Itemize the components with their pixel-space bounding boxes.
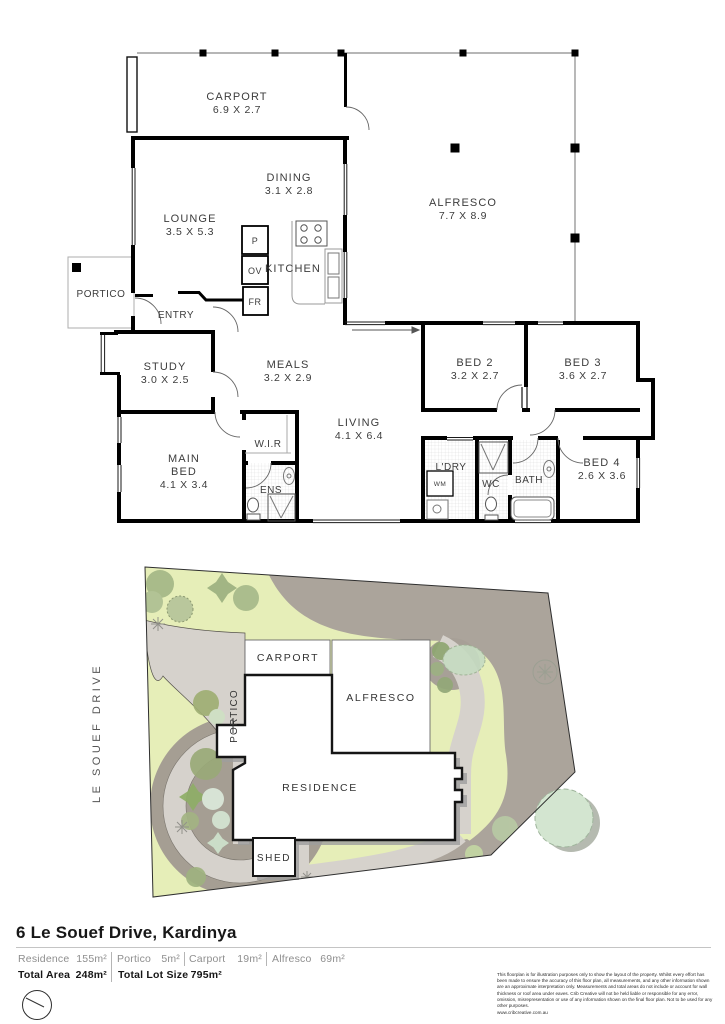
wc-toilet — [486, 497, 497, 511]
label-kitchen: KITCHEN — [265, 263, 321, 275]
ens-toilet — [248, 498, 259, 512]
floor-plan: CARPORT 6.9 X 2.7 DINING 3.1 X 2.8 ALFRE… — [0, 0, 725, 550]
site-plan: CARPORT ALFRESCO RESIDENCE SHED PORTICO … — [0, 550, 725, 910]
footer: 6 Le Souef Drive, Kardinya Residence 155… — [0, 910, 725, 1024]
disclaimer: This floorplan is for illustration purpo… — [497, 972, 713, 1016]
stat-value: 69m² — [303, 953, 345, 965]
room-labels: CARPORT 6.9 X 2.7 DINING 3.1 X 2.8 ALFRE… — [77, 91, 627, 496]
label-carport: CARPORT — [206, 91, 267, 103]
site-label-shed: SHED — [257, 853, 291, 864]
label-portico: PORTICO — [77, 289, 126, 300]
total-value: 795m² — [175, 969, 222, 981]
site-label-alfresco: ALFRESCO — [346, 692, 415, 704]
label-wc: WC — [482, 479, 500, 490]
stat-value: 19m² — [224, 953, 262, 965]
slider-arrow — [352, 327, 419, 333]
website-url: www.cribcreative.com.au — [497, 1010, 713, 1016]
label-bath: BATH — [515, 475, 543, 486]
entry-nook-wall — [178, 293, 243, 301]
label-alfresco: ALFRESCO — [429, 197, 497, 209]
svg-text:6.9 X 2.7: 6.9 X 2.7 — [213, 104, 261, 116]
label-wm: WM — [434, 481, 447, 488]
page-title: 6 Le Souef Drive, Kardinya — [16, 923, 237, 943]
floorplan-page: CARPORT 6.9 X 2.7 DINING 3.1 X 2.8 ALFRE… — [0, 0, 725, 1024]
label-main-bed: MAIN — [168, 453, 200, 465]
buildings — [217, 640, 467, 880]
pergola-beams — [137, 53, 575, 325]
stat-value: 155m² — [58, 953, 107, 965]
svg-text:3.6 X 2.7: 3.6 X 2.7 — [559, 370, 607, 382]
site-label-portico: PORTICO — [229, 689, 240, 743]
street-name: LE SOUEF DRIVE — [91, 663, 103, 803]
disclaimer-text: This floorplan is for illustration purpo… — [497, 972, 713, 1009]
stat-label: Portico — [117, 953, 151, 965]
stat-value: 5m² — [148, 953, 180, 965]
site-label-carport: CARPORT — [257, 652, 319, 664]
big-tree — [535, 789, 600, 852]
svg-text:4.1 X 3.4: 4.1 X 3.4 — [160, 479, 208, 491]
stat-divider — [111, 952, 112, 982]
svg-text:4.1 X 6.4: 4.1 X 6.4 — [335, 430, 383, 442]
laundry-trough — [427, 500, 448, 519]
label-pantry: P — [252, 236, 259, 246]
svg-text:3.2 X 2.9: 3.2 X 2.9 — [264, 372, 312, 384]
stat-divider — [266, 952, 267, 966]
compass-icon — [22, 990, 52, 1020]
label-living: LIVING — [338, 417, 381, 429]
label-ldry: L'DRY — [436, 462, 467, 473]
carport-pier — [127, 57, 137, 132]
cooktop — [296, 221, 327, 246]
label-entry: ENTRY — [158, 310, 194, 321]
svg-text:3.0 X 2.5: 3.0 X 2.5 — [141, 374, 189, 386]
label-bed3: BED 3 — [564, 357, 601, 369]
stat-label: Carport — [189, 953, 225, 965]
label-ens: ENS — [260, 485, 282, 496]
label-wir: W.I.R — [255, 439, 282, 450]
stat-divider — [184, 952, 185, 966]
label-study: STUDY — [144, 361, 187, 373]
svg-text:3.2 X 2.7: 3.2 X 2.7 — [451, 370, 499, 382]
label-oven: OV — [248, 266, 262, 276]
label-lounge: LOUNGE — [163, 213, 216, 225]
posts — [200, 50, 580, 243]
svg-text:7.7 X 8.9: 7.7 X 8.9 — [439, 210, 487, 222]
svg-text:3.1 X 2.8: 3.1 X 2.8 — [265, 185, 313, 197]
site-label-residence: RESIDENCE — [282, 782, 358, 794]
label-meals: MEALS — [267, 359, 310, 371]
label-bed2: BED 2 — [456, 357, 493, 369]
label-fridge: FR — [249, 297, 262, 307]
label-bed4: BED 4 — [583, 457, 620, 469]
svg-text:BED: BED — [171, 466, 197, 478]
door-jambs — [522, 387, 527, 408]
svg-text:3.5 X 5.3: 3.5 X 5.3 — [166, 226, 214, 238]
svg-text:2.6 X 3.6: 2.6 X 3.6 — [578, 470, 626, 482]
total-value: 248m² — [58, 969, 107, 981]
label-dining: DINING — [266, 172, 311, 184]
divider — [16, 947, 711, 948]
